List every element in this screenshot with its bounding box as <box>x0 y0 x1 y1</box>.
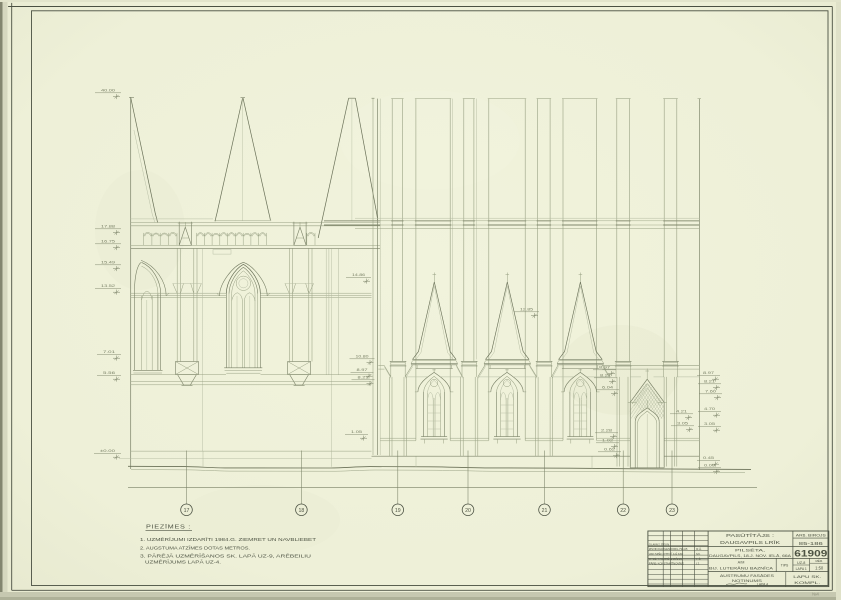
svg-text:3. PĀRĒJĀ UZMĒRĪŠANOS SK. LAPĀ: 3. PĀRĒJĀ UZMĒRĪŠANOS SK. LAPĀ UZ-9, ARĒ… <box>140 553 311 558</box>
svg-text:3.05: 3.05 <box>704 422 715 426</box>
svg-text:PASŪTĪTĀJS :: PASŪTĪTĀJS : <box>726 533 774 538</box>
svg-text:I.Ī.: I.Ī. <box>696 562 699 566</box>
svg-text:8.97: 8.97 <box>357 368 368 372</box>
svg-text:14.86: 14.86 <box>352 273 365 277</box>
svg-text:4.21: 4.21 <box>676 410 687 414</box>
svg-text:6.04: 6.04 <box>602 386 613 390</box>
svg-text:10.80: 10.80 <box>356 355 369 359</box>
svg-text:IZTRĖ.J.ZARINĒJEVAĪEVA: IZTRĖ.J.ZARINĒJEVAĪEVA <box>649 556 682 561</box>
svg-text:LAPA 4: LAPA 4 <box>757 582 768 586</box>
svg-text:UZ-8: UZ-8 <box>797 561 805 565</box>
svg-text:0.00: 0.00 <box>704 464 715 468</box>
svg-text:12.85: 12.85 <box>520 308 533 312</box>
svg-text:2. AUGSTUMA ATZĪMES DOTAS METR: 2. AUGSTUMA ATZĪMES DOTAS METROS. <box>140 545 250 550</box>
svg-text:2.28: 2.28 <box>601 429 612 433</box>
svg-text:M.I.: M.I. <box>696 552 701 556</box>
svg-text:PIEZĪMES :: PIEZĪMES : <box>146 524 191 531</box>
svg-text:8.21: 8.21 <box>358 376 369 380</box>
svg-text:15.49: 15.49 <box>101 261 115 265</box>
svg-text:19: 19 <box>395 508 401 514</box>
svg-text:±0.00: ±0.00 <box>100 449 115 453</box>
svg-text:DAUGAVPILS, 18.J. NOV. IELĀ, 6: DAUGAVPILS, 18.J. NOV. IELĀ, 66A <box>709 554 792 558</box>
svg-text:LAPU SK.: LAPU SK. <box>793 574 821 579</box>
svg-text:40.00: 40.00 <box>101 89 115 93</box>
svg-text:21: 21 <box>542 508 548 514</box>
svg-text:4.70: 4.70 <box>704 407 715 411</box>
svg-text:0.45: 0.45 <box>703 456 714 460</box>
svg-text:7.01: 7.01 <box>103 350 115 354</box>
svg-text:1. UZMĒRĪJUMI IZDARĪTI 1984.G.: 1. UZMĒRĪJUMI IZDARĪTI 1984.G. ZIEMRET U… <box>140 537 317 542</box>
svg-text:MĒR.: MĒR. <box>815 559 823 563</box>
svg-text:7.60: 7.60 <box>705 390 716 394</box>
svg-text:A/M: A/M <box>738 561 745 565</box>
svg-text:UZMĒRĪJUMS LAPĀ UZ-4.: UZMĒRĪJUMS LAPĀ UZ-4. <box>145 559 221 564</box>
svg-text:1:50: 1:50 <box>815 565 824 570</box>
svg-text:8.21: 8.21 <box>704 380 715 384</box>
svg-text:20: 20 <box>465 508 471 514</box>
svg-text:0.62: 0.62 <box>604 448 615 452</box>
svg-text:KOMPL.: KOMPL. <box>794 580 820 585</box>
svg-text:8.97: 8.97 <box>703 371 714 375</box>
svg-text:1.05: 1.05 <box>351 430 362 434</box>
svg-text:22: 22 <box>620 508 626 514</box>
svg-text:PĀRB. KONSTANTĪNOVĪŅŠ: PĀRB. KONSTANTĪNOVĪŅŠ <box>649 561 684 566</box>
svg-text:LAPA 1: LAPA 1 <box>796 567 807 571</box>
svg-text:IZSVID.DAUGENDORG.7311.B: IZSVID.DAUGENDORG.7311.B <box>649 547 688 551</box>
svg-text:R.Ā.: R.Ā. <box>696 547 702 551</box>
svg-text:PILSĒTA,: PILSĒTA, <box>735 549 765 553</box>
svg-text:1.02: 1.02 <box>602 439 613 443</box>
svg-text:16.75: 16.75 <box>101 240 115 244</box>
svg-text:8.97: 8.97 <box>599 366 610 370</box>
svg-text:17.88: 17.88 <box>101 225 115 229</box>
svg-text:85-186: 85-186 <box>799 541 824 547</box>
svg-text:L.Ā.: L.Ā. <box>696 557 701 561</box>
svg-text:GLAVN.Ī. ZIELIŅ: GLAVN.Ī. ZIELIŅ <box>649 542 669 546</box>
svg-text:61909: 61909 <box>794 549 827 560</box>
svg-text:23: 23 <box>669 508 675 514</box>
svg-text:13.52: 13.52 <box>101 284 115 288</box>
svg-text:AR6. BIROJS: AR6. BIROJS <box>796 533 826 537</box>
svg-text:17: 17 <box>184 508 190 514</box>
svg-text:18: 18 <box>299 508 305 514</box>
svg-text:VAD.SPĒC.OTTO Ī.A.Ē.KAV: VAD.SPĒC.OTTO Ī.A.Ē.KAV <box>649 552 683 556</box>
svg-text:TIPS: TIPS <box>781 564 789 568</box>
svg-text:DAUGAVPILS LRĪK: DAUGAVPILS LRĪK <box>720 540 780 545</box>
svg-text:5.56: 5.56 <box>103 371 115 375</box>
svg-text:№4: №4 <box>812 592 819 597</box>
svg-text:3.05: 3.05 <box>677 422 688 426</box>
svg-text:8.21: 8.21 <box>600 374 611 378</box>
svg-text:BIJ. LUTERĀŅU BAZNĪCA: BIJ. LUTERĀŅU BAZNĪCA <box>709 566 773 571</box>
